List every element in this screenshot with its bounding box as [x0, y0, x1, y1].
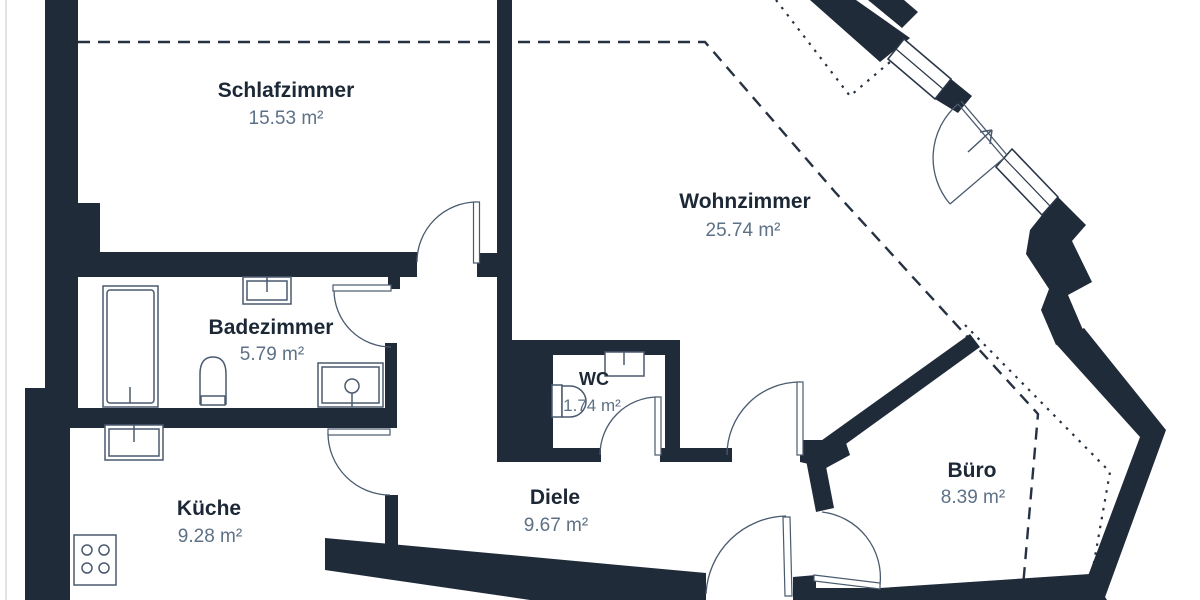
door-arc-badezimmer	[334, 290, 391, 347]
page-edge-line	[5, 0, 7, 600]
room-label-diele: Diele 9.67 m²	[524, 486, 588, 536]
door-leaf-entrance	[783, 517, 792, 596]
room-label-schlafzimmer: Schlafzimmer 15.53 m²	[218, 79, 355, 129]
toilet-bad-base	[201, 396, 225, 405]
entrance-direction-arrow-icon	[968, 130, 992, 152]
room-label-badezimmer: Badezimmer 5.79 m²	[209, 316, 334, 365]
door-leaf-buero	[814, 575, 880, 589]
toilet-wc-tank	[552, 385, 562, 417]
wall-left-step	[45, 203, 100, 253]
stove-body	[74, 535, 116, 585]
wall-left-upper	[45, 0, 78, 203]
room-area-wohnzimmer: 25.74 m²	[706, 220, 781, 241]
wall-bad-south	[25, 408, 397, 428]
wall-se	[1056, 328, 1166, 600]
sink-bad-icon	[318, 363, 383, 407]
door-arc-wohnzimmer	[727, 382, 800, 455]
door-arc-buero	[822, 512, 880, 585]
door-leaf-balcony	[950, 158, 1004, 204]
wall-wc-east	[665, 340, 680, 462]
door-leaf-schlafzimmer	[474, 202, 480, 263]
room-area-kueche: 9.28 m²	[178, 526, 242, 547]
floorplan-svg: Schlafzimmer 15.53 m² Wohnzimmer 25.74 m…	[0, 0, 1200, 600]
wall-schlaf-wohn-divider	[497, 0, 512, 342]
room-name-diele: Diele	[530, 486, 580, 509]
room-label-kueche: Küche 9.28 m²	[177, 497, 242, 547]
floorplan-page: Schlafzimmer 15.53 m² Wohnzimmer 25.74 m…	[0, 0, 1200, 600]
wall-wohn-buero-divider	[811, 334, 980, 462]
wall-wc-north	[497, 340, 680, 355]
door-leaf-wohnzimmer	[797, 382, 803, 455]
stove-icon	[74, 535, 116, 585]
room-label-buero: Büro 8.39 m²	[941, 459, 1005, 508]
room-name-wohnzimmer: Wohnzimmer	[679, 190, 810, 213]
wall-kueche-right-stub	[385, 495, 398, 552]
bathtub-icon	[103, 286, 158, 407]
radiator-wc-icon	[605, 352, 644, 376]
room-name-schlafzimmer: Schlafzimmer	[218, 79, 355, 102]
toilet-bad-icon	[200, 357, 226, 405]
room-name-badezimmer: Badezimmer	[209, 316, 334, 339]
door-arc-entrance	[706, 516, 786, 594]
door-threshold-balcony-1	[958, 104, 1004, 158]
wall-left-lower	[25, 428, 70, 600]
room-name-kueche: Küche	[177, 497, 241, 520]
room-area-buero: 8.39 m²	[941, 487, 1005, 508]
room-labels: Schlafzimmer 15.53 m² Wohnzimmer 25.74 m…	[177, 79, 1005, 547]
door-leaf-badezimmer	[333, 285, 391, 291]
room-name-buero: Büro	[948, 459, 997, 482]
windows	[888, 39, 1058, 215]
wall-east-corner	[1026, 197, 1092, 345]
door-arc-balcony	[933, 104, 958, 204]
room-area-schlafzimmer: 15.53 m²	[249, 108, 324, 129]
radiator-kueche-icon	[105, 425, 163, 460]
door-threshold-balcony-2	[961, 101, 1007, 155]
room-name-wc: WC	[579, 369, 609, 389]
door-leaf-kueche	[328, 429, 390, 435]
wall-schlafzimmer-south	[45, 252, 417, 277]
radiator-bad-icon	[243, 277, 291, 304]
room-area-diele: 9.67 m²	[524, 515, 588, 536]
wall-wc-south-left	[497, 448, 601, 462]
bathtub-inner	[107, 290, 154, 403]
wall-bottom-left	[325, 538, 706, 600]
room-area-badezimmer: 5.79 m²	[240, 344, 304, 365]
wall-wc-south-right	[660, 448, 732, 462]
door-arc-schlafzimmer	[417, 202, 477, 262]
sink-inner	[322, 367, 379, 403]
wall-wc-west	[497, 340, 553, 462]
room-area-wc: 1.74 m²	[563, 396, 621, 415]
door-leaf-wc	[655, 397, 661, 455]
door-arc-kueche	[328, 433, 390, 495]
room-label-wohnzimmer: Wohnzimmer 25.74 m²	[679, 190, 810, 241]
